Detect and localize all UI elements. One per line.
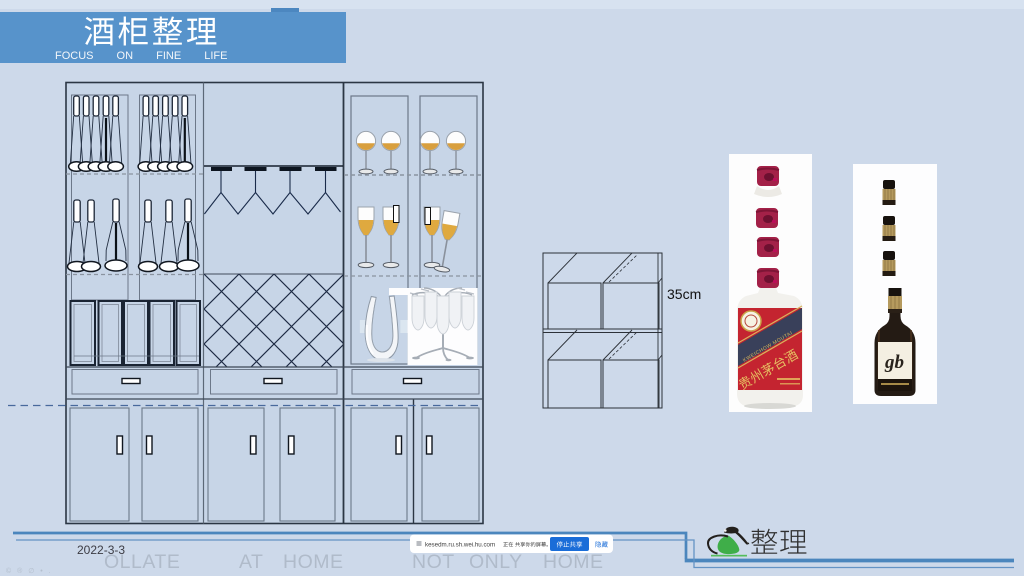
svg-text:kesedm.ru.sh.wei.hu.com: kesedm.ru.sh.wei.hu.com — [425, 542, 495, 549]
svg-text:gb: gb — [884, 352, 904, 373]
